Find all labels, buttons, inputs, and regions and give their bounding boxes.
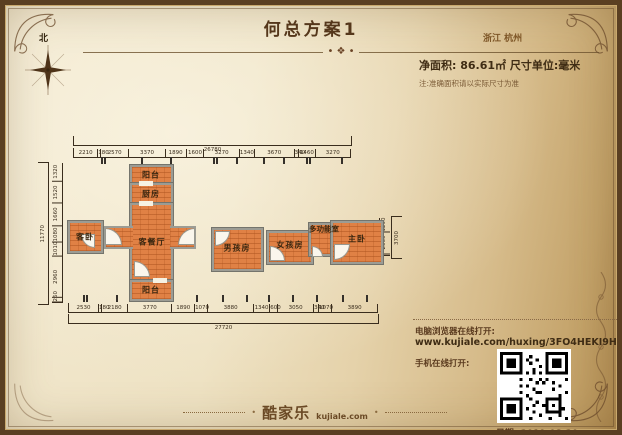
- wall-tick: [283, 157, 285, 164]
- room-label: 阳台: [142, 285, 160, 296]
- wall-tick: [86, 295, 88, 302]
- dim-value: 3270: [204, 149, 239, 157]
- dim-value: 2530: [69, 304, 99, 312]
- wall-tick: [246, 295, 248, 302]
- wall-tick: [213, 157, 215, 164]
- dim-value: 3700: [393, 231, 401, 245]
- dim-value: 11770: [39, 225, 47, 243]
- dim-value: 3670: [255, 149, 295, 157]
- dim-value: 1660: [52, 203, 62, 226]
- dim-value: 1890: [166, 149, 187, 157]
- wall-tick: [222, 295, 224, 302]
- wall-tick: [263, 157, 265, 164]
- north-label: 北: [39, 31, 48, 44]
- plan-url: www.kujiale.com/huxing/3FO4HEKI9H4T: [415, 337, 622, 348]
- dim-value: 1070: [195, 304, 208, 312]
- dim-value: 2180: [102, 304, 128, 312]
- room-label: 客餐厅: [139, 237, 166, 248]
- dim-total-top: 26780: [73, 136, 352, 146]
- dim-value: 3880: [208, 304, 254, 312]
- room-label: 男孩房: [224, 243, 251, 254]
- corner-flourish-icon: [11, 380, 57, 426]
- wall-tick: [292, 295, 294, 302]
- dim-value: 27720: [215, 325, 233, 331]
- wall-tick: [309, 157, 311, 164]
- logo-domain-text: kujiale.com: [316, 412, 368, 421]
- wall-opening: [139, 201, 153, 206]
- wall-tick: [104, 157, 106, 164]
- wall-tick: [366, 295, 368, 302]
- room-label: 厨房: [142, 189, 160, 200]
- compass-icon: [25, 45, 71, 95]
- wall-tick: [236, 157, 238, 164]
- room-label: 客卧: [76, 232, 94, 243]
- net-area-label: 净面积: 86.61㎡ 尺寸单位:毫米: [419, 57, 580, 73]
- area-note: 注:准确面积请以实际尺寸为准: [419, 78, 519, 89]
- dim-value: 1320: [52, 163, 62, 182]
- dim-total-left: 11770: [38, 162, 49, 305]
- dim-value: 3050: [278, 304, 314, 312]
- logo-bullet: •: [374, 408, 379, 417]
- dim-value: 3370: [129, 149, 165, 157]
- mobile-open-label: 手机在线打开:: [415, 357, 469, 369]
- divider-ornament-icon: • ❖ •: [327, 47, 354, 57]
- wall-tick: [83, 295, 85, 302]
- kujiale-logo: • 酷家乐 kujiale.com •: [175, 402, 455, 423]
- logo-bullet: •: [251, 408, 256, 417]
- logo-cn-text: 酷家乐: [262, 402, 310, 423]
- room-label: 阳台: [142, 170, 160, 181]
- wall-tick: [268, 295, 270, 302]
- dim-value: 3890: [332, 304, 378, 312]
- dim-value: 1340: [240, 149, 255, 157]
- header-divider: • ❖ •: [83, 47, 599, 57]
- dim-value: 2570: [101, 149, 129, 157]
- logo-dotted-line: [385, 412, 447, 413]
- wall-tick: [170, 157, 172, 164]
- wall-tick: [341, 157, 343, 164]
- qr-pattern-icon: [500, 352, 568, 420]
- dim-value: 260: [52, 298, 62, 303]
- wall-opening: [139, 181, 153, 186]
- dim-value: 1010: [52, 242, 62, 257]
- dim-value: 1520: [52, 182, 62, 203]
- dim-total-bottom: 27720: [68, 314, 379, 324]
- dim-value: 1600: [187, 149, 205, 157]
- dim-value: 3770: [128, 304, 172, 312]
- qr-code: [497, 349, 571, 423]
- logo-dotted-line: [183, 412, 245, 413]
- wall-tick: [216, 157, 218, 164]
- divider-line: [83, 52, 323, 53]
- location-label: 浙江 杭州: [483, 31, 522, 44]
- wall-tick: [141, 157, 143, 164]
- wall-tick: [196, 295, 198, 302]
- wall-tick: [342, 295, 344, 302]
- dim-chain-bottom: 2530 180 2180 3770 1890 1070 3880 1340 6…: [68, 303, 378, 313]
- room-label: 主卧: [348, 234, 366, 245]
- room-label: 女孩房: [277, 240, 304, 251]
- dim-value: 1070: [319, 304, 332, 312]
- date-label: 日期: 2019-08-20: [467, 426, 607, 435]
- dim-value: 1890: [172, 304, 195, 312]
- dim-value: 1080: [52, 227, 62, 243]
- wall-tick: [316, 295, 318, 302]
- page-title: 何总方案1: [5, 15, 617, 40]
- wall-tick: [306, 157, 308, 164]
- info-dotted-separator: [413, 319, 619, 320]
- dim-value: 1340: [254, 304, 270, 312]
- wall-tick: [116, 295, 118, 302]
- browser-open-label: 电脑浏览器在线打开:: [415, 325, 495, 337]
- dim-value: 600: [270, 304, 278, 312]
- room-label: 多功能室: [309, 224, 339, 235]
- wall-tick: [101, 157, 103, 164]
- dim-total-right: 3700: [391, 216, 402, 259]
- dim-chain-left: 1320 1520 1660 1080 1010 2960 260: [52, 163, 63, 303]
- dim-value: 1460: [299, 149, 315, 157]
- wall-opening: [153, 278, 167, 283]
- dim-value: 3270: [316, 149, 351, 157]
- dim-value: 2210: [74, 149, 98, 157]
- floor-plan-sheet: 何总方案1 浙江 杭州 • ❖ • 北 净面积: 86.61㎡ 尺寸单位:毫米 …: [0, 0, 622, 435]
- divider-line: [359, 52, 599, 53]
